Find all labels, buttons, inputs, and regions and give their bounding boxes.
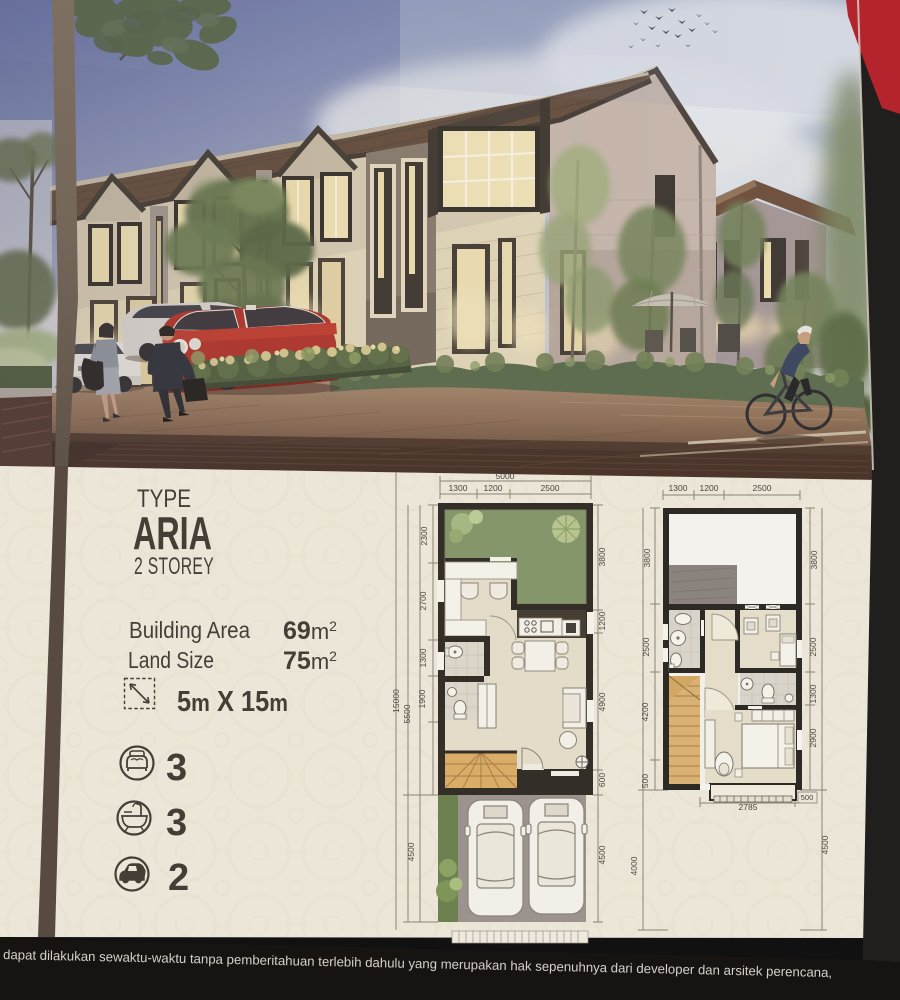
- svg-text:1300: 1300: [449, 483, 468, 493]
- svg-text:2500: 2500: [808, 637, 818, 656]
- svg-text:4500: 4500: [406, 842, 416, 861]
- svg-text:4500: 4500: [820, 835, 830, 854]
- svg-text:2: 2: [168, 857, 189, 899]
- svg-text:5m X 15m: 5m X 15m: [177, 686, 288, 718]
- svg-text:2300: 2300: [419, 526, 429, 545]
- svg-text:2785: 2785: [739, 802, 758, 812]
- svg-text:Building Area: Building Area: [129, 617, 250, 643]
- svg-text:1200: 1200: [484, 483, 503, 493]
- svg-text:2 STOREY: 2 STOREY: [134, 553, 214, 580]
- svg-text:5000: 5000: [496, 471, 515, 481]
- svg-text:2500: 2500: [753, 483, 772, 493]
- svg-text:15000: 15000: [391, 689, 401, 713]
- svg-text:3800: 3800: [642, 548, 652, 567]
- svg-text:600: 600: [597, 773, 607, 787]
- svg-text:3: 3: [166, 747, 187, 789]
- svg-text:ARIA: ARIA: [133, 507, 212, 559]
- svg-text:500: 500: [640, 774, 650, 788]
- svg-text:2500: 2500: [641, 637, 651, 656]
- svg-text:1300: 1300: [808, 684, 818, 703]
- svg-text:3800: 3800: [809, 550, 819, 569]
- svg-text:1300: 1300: [418, 648, 428, 667]
- svg-text:3: 3: [166, 802, 187, 844]
- svg-text:500: 500: [801, 793, 814, 802]
- svg-text:5500: 5500: [402, 704, 412, 723]
- svg-text:1900: 1900: [417, 689, 427, 708]
- svg-text:1200: 1200: [700, 483, 719, 493]
- svg-text:4000: 4000: [629, 856, 639, 875]
- svg-text:69m2: 69m2: [283, 617, 337, 645]
- svg-text:4200: 4200: [640, 702, 650, 721]
- svg-text:2700: 2700: [418, 591, 428, 610]
- svg-text:75m2: 75m2: [283, 647, 337, 675]
- svg-text:4900: 4900: [597, 692, 607, 711]
- svg-text:4500: 4500: [597, 845, 607, 864]
- svg-text:2500: 2500: [541, 483, 560, 493]
- svg-text:3800: 3800: [597, 547, 607, 566]
- svg-text:1300: 1300: [669, 483, 688, 493]
- svg-text:2900: 2900: [808, 728, 818, 747]
- svg-text:Land Size: Land Size: [128, 647, 214, 673]
- svg-text:1200: 1200: [597, 611, 607, 630]
